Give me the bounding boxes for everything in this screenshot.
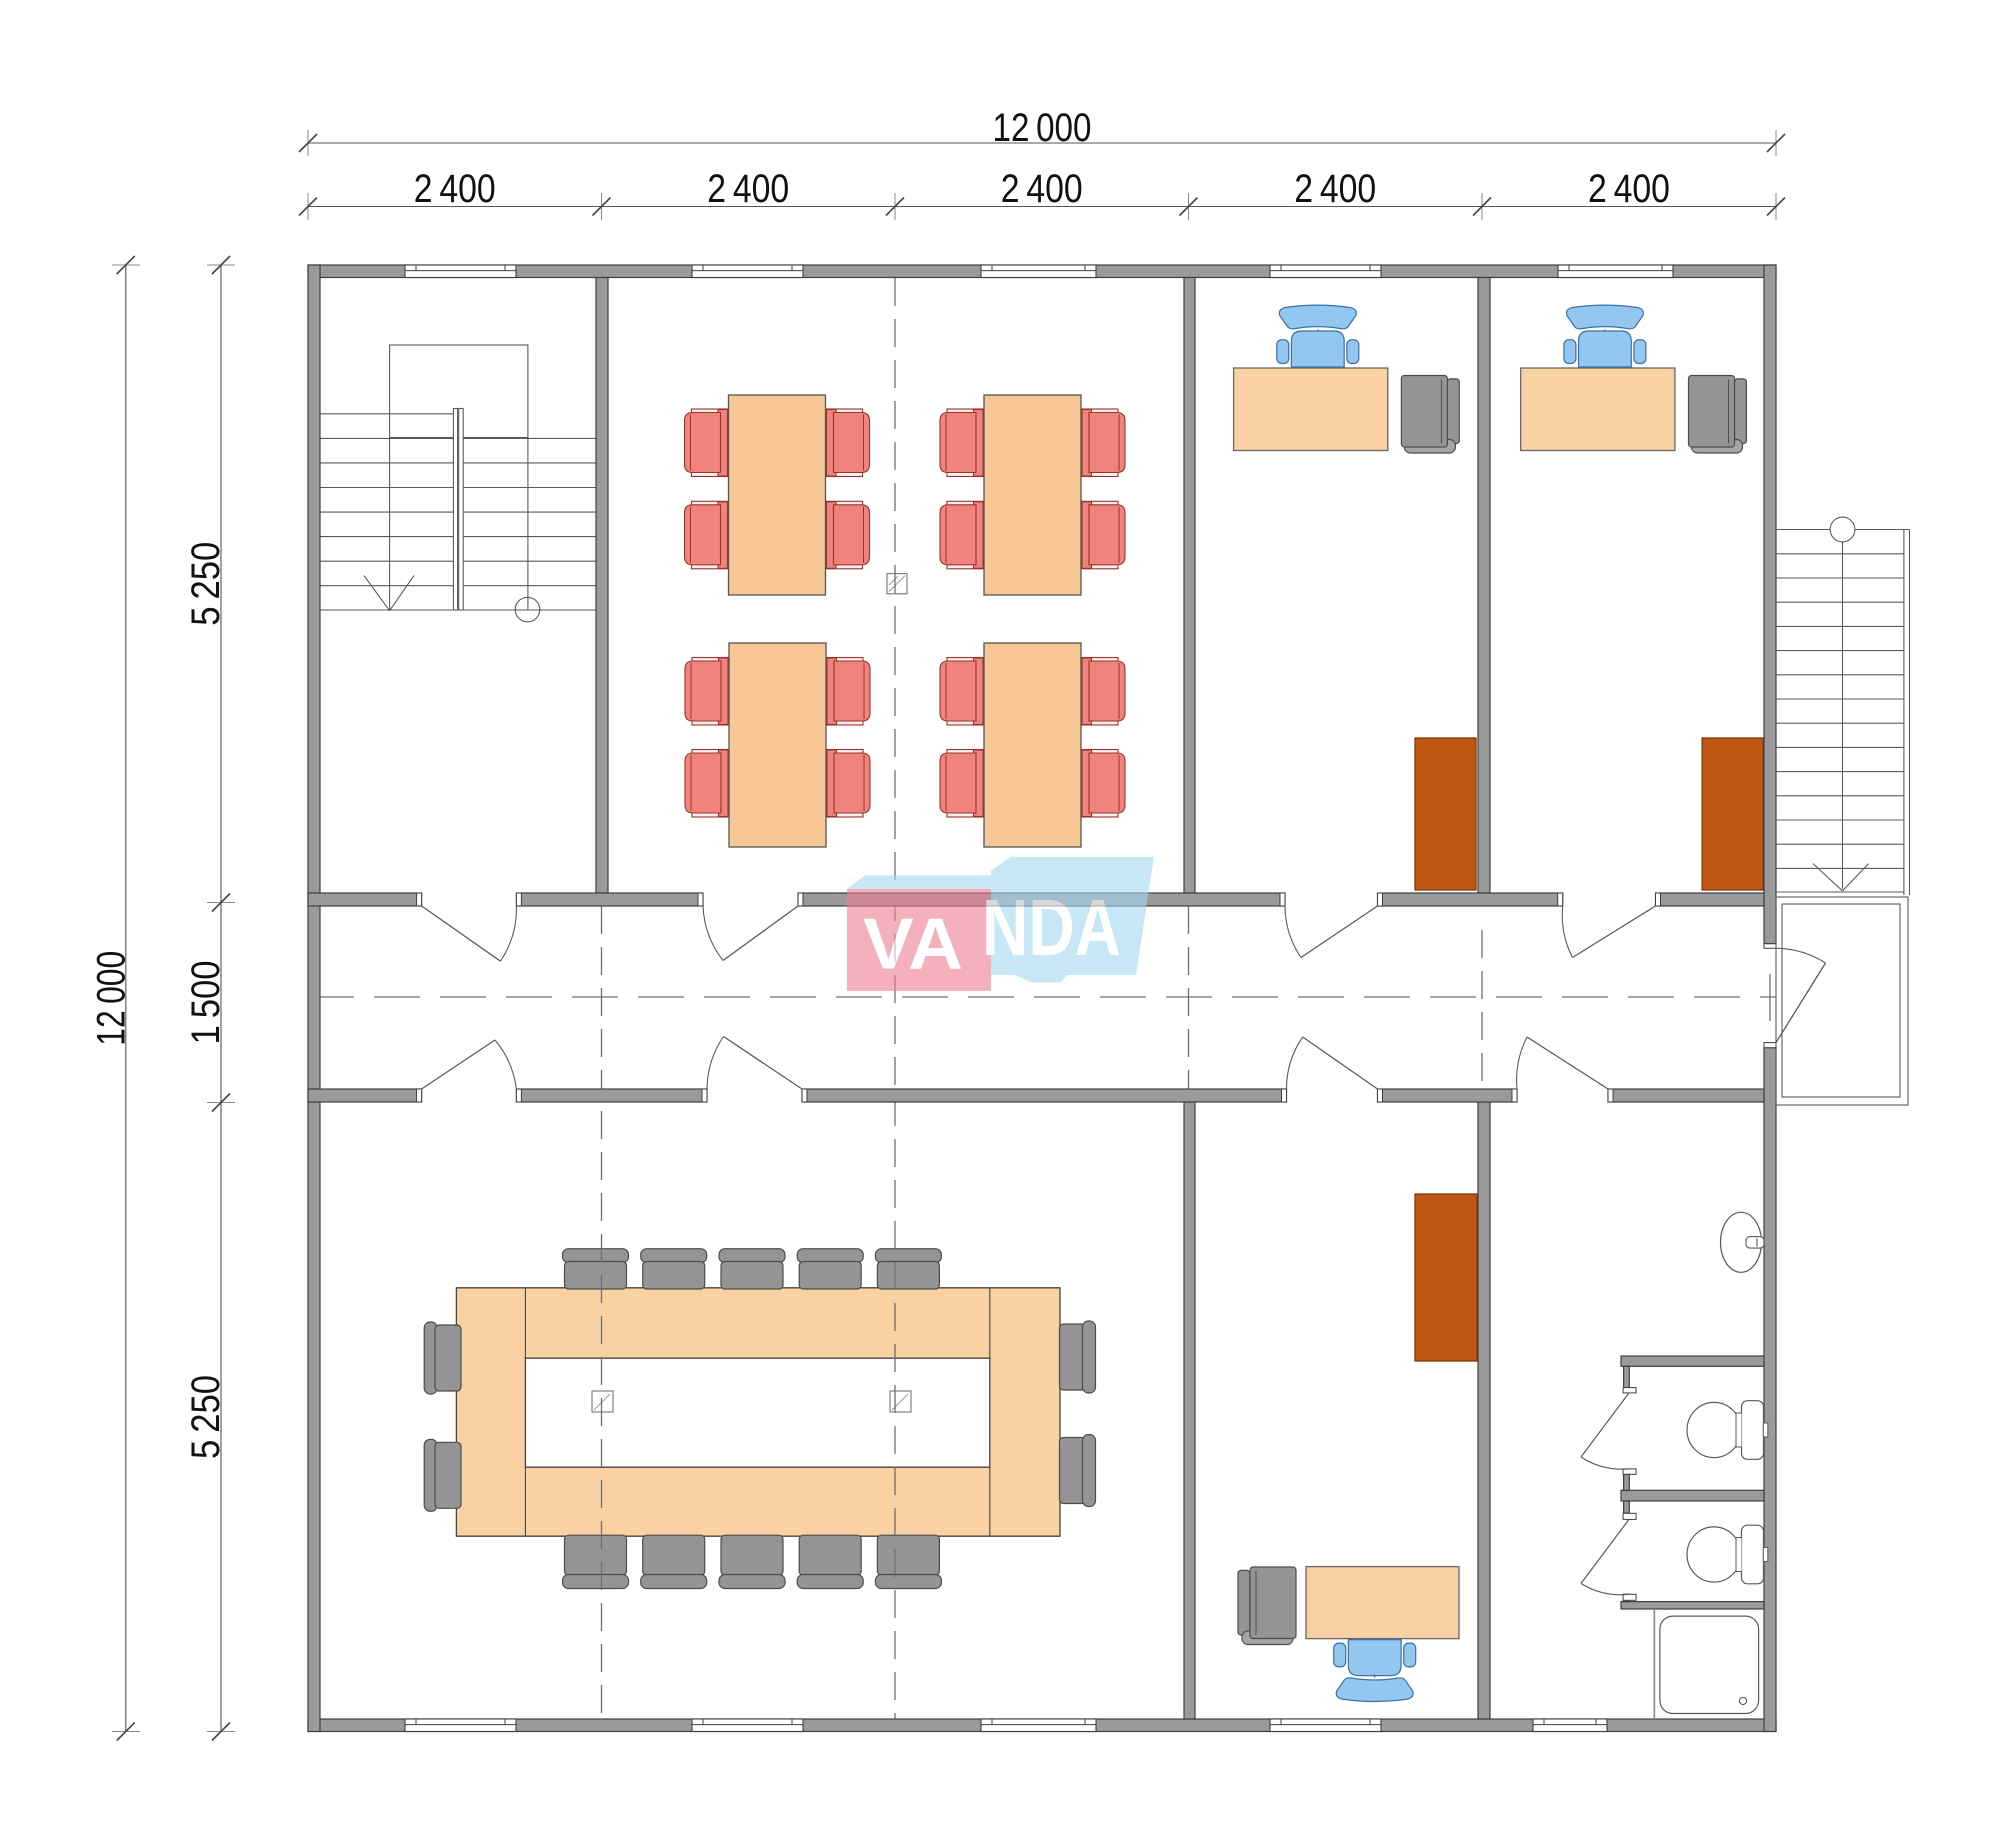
svg-text:2 400: 2 400 bbox=[1588, 167, 1670, 211]
svg-text:NDA: NDA bbox=[982, 883, 1121, 972]
svg-text:1 500: 1 500 bbox=[184, 961, 228, 1045]
svg-text:5 250: 5 250 bbox=[184, 542, 228, 626]
svg-text:2 400: 2 400 bbox=[414, 167, 496, 211]
svg-text:12 000: 12 000 bbox=[993, 106, 1092, 150]
svg-text:VA: VA bbox=[863, 905, 963, 985]
svg-text:2 400: 2 400 bbox=[1001, 167, 1083, 211]
svg-text:5 250: 5 250 bbox=[184, 1375, 228, 1459]
svg-text:2 400: 2 400 bbox=[1294, 167, 1376, 211]
svg-text:2 400: 2 400 bbox=[707, 167, 789, 211]
svg-text:12 000: 12 000 bbox=[90, 951, 134, 1046]
